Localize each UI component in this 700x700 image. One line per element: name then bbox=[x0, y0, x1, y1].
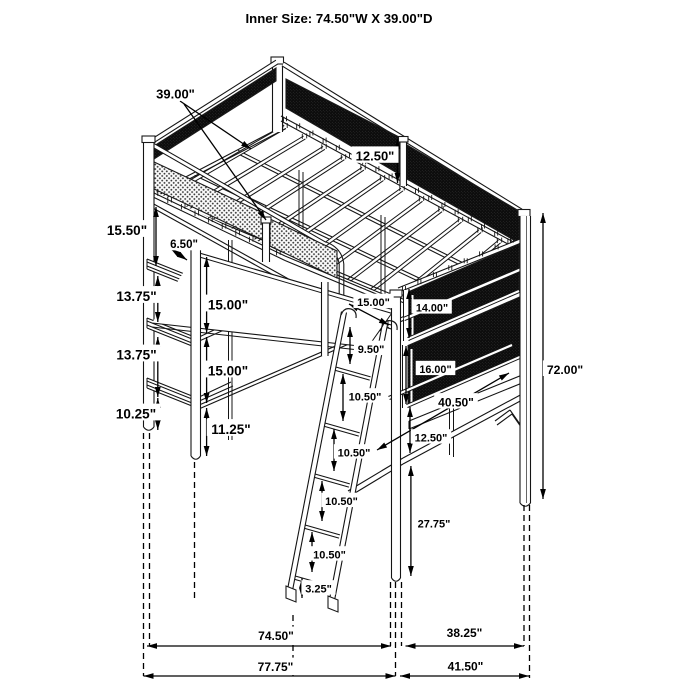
svg-text:13.75": 13.75" bbox=[116, 289, 156, 304]
svg-text:38.25": 38.25" bbox=[447, 626, 483, 640]
svg-text:12.50": 12.50" bbox=[415, 433, 448, 445]
svg-text:6.50": 6.50" bbox=[170, 239, 198, 251]
svg-text:11.25": 11.25" bbox=[211, 422, 250, 437]
svg-text:39.00": 39.00" bbox=[156, 87, 195, 102]
svg-text:9.50": 9.50" bbox=[358, 344, 385, 356]
svg-text:12.50": 12.50" bbox=[356, 149, 395, 164]
svg-text:10.50": 10.50" bbox=[313, 550, 346, 562]
svg-text:16.00": 16.00" bbox=[419, 364, 451, 376]
svg-text:15.50": 15.50" bbox=[107, 223, 147, 238]
svg-text:77.75": 77.75" bbox=[258, 660, 294, 674]
svg-text:3.25": 3.25" bbox=[305, 584, 332, 596]
svg-text:74.50": 74.50" bbox=[258, 629, 294, 643]
svg-text:40.50": 40.50" bbox=[438, 395, 474, 409]
svg-text:72.00": 72.00" bbox=[547, 363, 583, 377]
svg-text:15.00": 15.00" bbox=[357, 297, 390, 309]
svg-text:Inner Size: 74.50"W X 39.00"D: Inner Size: 74.50"W X 39.00"D bbox=[246, 11, 433, 26]
svg-text:10.50": 10.50" bbox=[338, 448, 371, 460]
svg-text:15.00": 15.00" bbox=[208, 363, 248, 378]
svg-text:14.00": 14.00" bbox=[416, 303, 448, 315]
svg-text:15.00": 15.00" bbox=[208, 297, 248, 312]
svg-text:10.25": 10.25" bbox=[116, 406, 156, 421]
svg-text:10.50": 10.50" bbox=[349, 392, 382, 404]
svg-text:27.75": 27.75" bbox=[418, 519, 451, 531]
svg-text:13.75": 13.75" bbox=[116, 347, 156, 362]
svg-text:10.50": 10.50" bbox=[325, 496, 358, 508]
svg-text:41.50": 41.50" bbox=[448, 659, 484, 673]
